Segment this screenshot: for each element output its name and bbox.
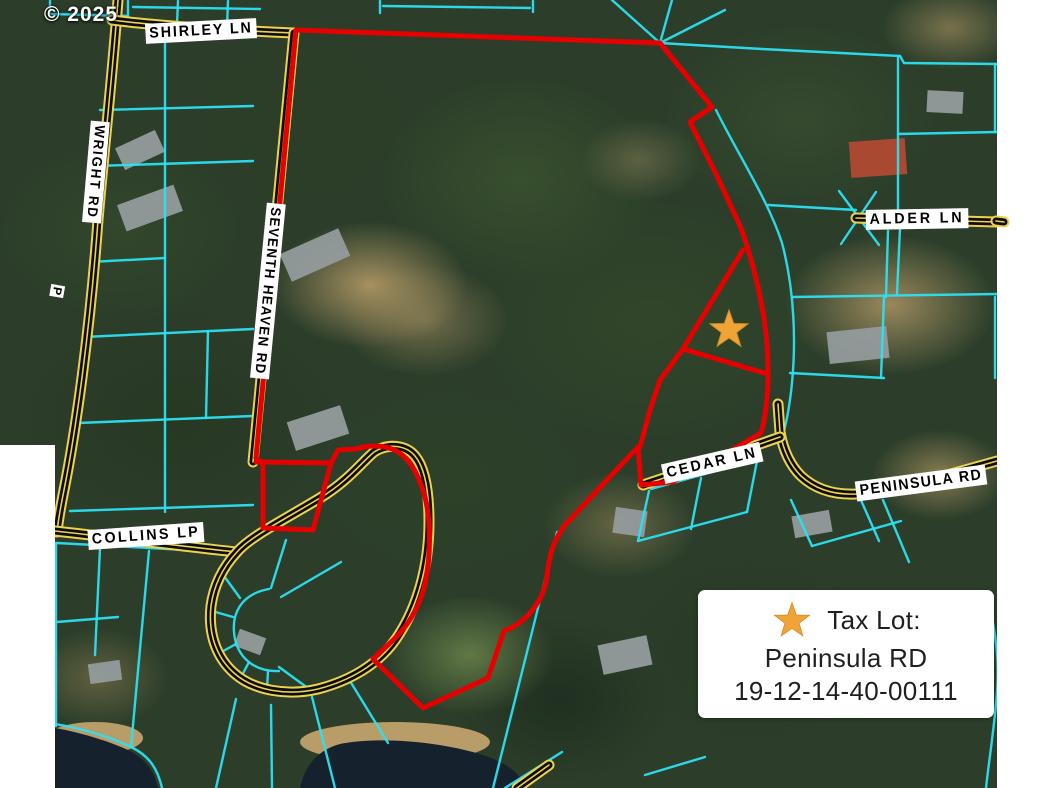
copyright-text: © 2025	[44, 3, 118, 27]
road-label-partial: P	[49, 284, 65, 298]
map-canvas: SHIRLEY LN WRIGHT RD SEVENTH HEAVEN RD A…	[0, 0, 1050, 788]
edge-mask-bottom-left	[0, 445, 55, 788]
water-areas	[47, 722, 526, 788]
legend-star-icon	[771, 600, 813, 642]
legend-title: Tax Lot:	[827, 604, 920, 637]
legend-road-name: Peninsula RD	[765, 642, 928, 675]
tax-lot-boundary	[256, 30, 768, 708]
tax-lot-star-icon	[710, 310, 748, 346]
road-label-alder: ALDER LN	[866, 208, 969, 230]
legend-parcel-id: 19-12-14-40-00111	[734, 675, 958, 708]
legend-box: Tax Lot: Peninsula RD 19-12-14-40-00111	[698, 590, 994, 718]
edge-mask-right	[997, 0, 1050, 788]
